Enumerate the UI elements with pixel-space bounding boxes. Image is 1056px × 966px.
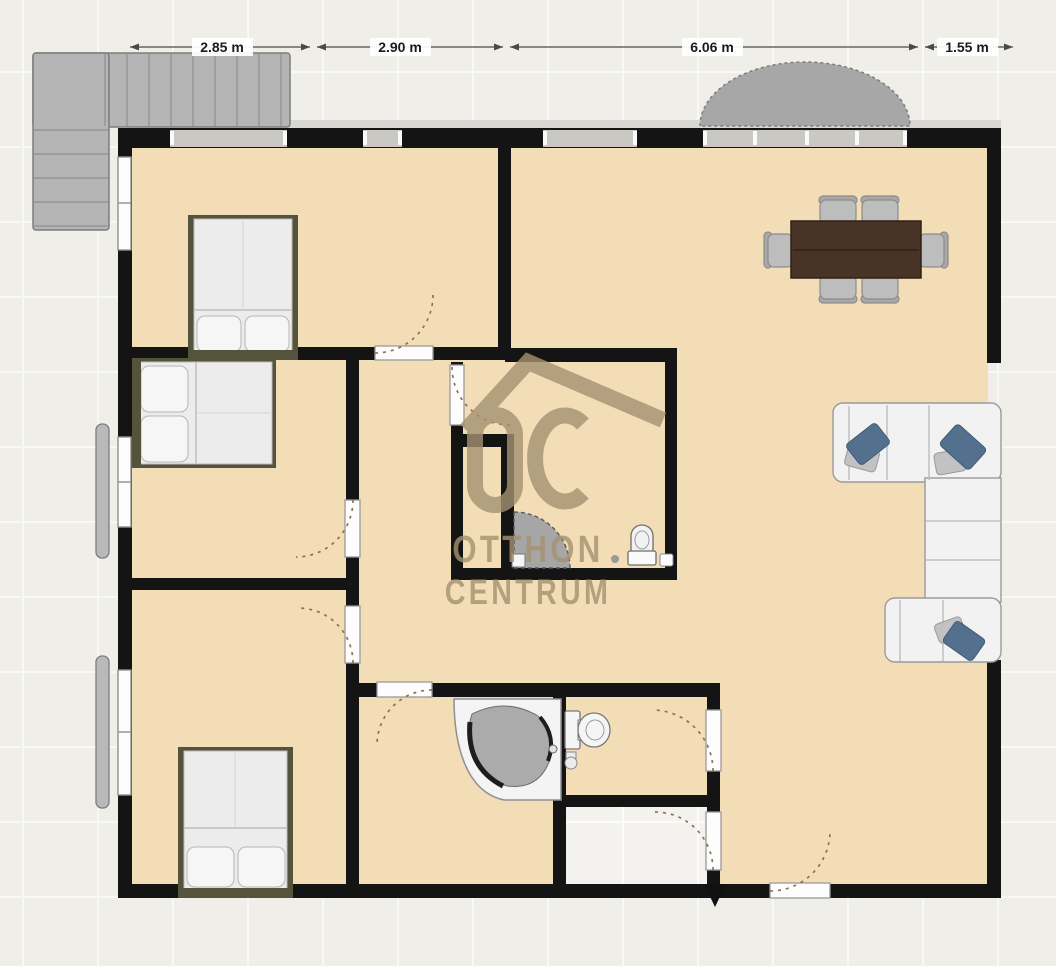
bed-2 <box>132 358 276 468</box>
door-shower-room <box>450 365 464 425</box>
wall-right-lower <box>987 660 1001 898</box>
shutter-bar-upper <box>96 424 109 558</box>
wall-shower-room-right <box>665 350 677 580</box>
toilet-brush <box>565 752 577 769</box>
wall-hung-basin <box>660 554 673 566</box>
window-living-top-small <box>543 130 637 147</box>
wall-living-divider <box>498 148 511 350</box>
door-closet <box>706 812 721 870</box>
watermark-line2: CENTRUM <box>445 572 611 611</box>
window-bedroom2-left <box>118 437 131 527</box>
wall-wc-closet-divider <box>553 795 720 807</box>
window-bedroom1-top <box>170 130 287 147</box>
closet-floor <box>566 807 707 884</box>
wall-bed2-bed3 <box>132 578 346 590</box>
dining-chair <box>919 232 948 268</box>
dining-chair <box>819 196 857 224</box>
dining-chair <box>861 196 899 224</box>
bed-3 <box>178 747 293 898</box>
bed-1 <box>188 215 298 360</box>
floor-plan-page: OTTHON CENTRUM 2.85 m 2.90 m 6.06 m 1.55… <box>0 0 1056 966</box>
window-bedroom3-left <box>118 670 131 795</box>
dimension-label-3: 6.06 m <box>690 39 734 55</box>
dining-chair <box>764 232 793 268</box>
door-bathroom <box>377 682 432 697</box>
window-bedroom1-left <box>118 157 131 250</box>
shutter-bar-lower <box>96 656 109 808</box>
dimension-label-4: 1.55 m <box>945 39 989 55</box>
floor-plan-canvas: OTTHON CENTRUM 2.85 m 2.90 m 6.06 m 1.55… <box>0 0 1056 966</box>
watermark-line1: OTTHON <box>452 529 603 571</box>
dimension-label-2: 2.90 m <box>378 39 422 55</box>
dining-chair <box>861 275 899 303</box>
window-living-top-large <box>703 130 907 147</box>
dining-chair <box>819 275 857 303</box>
tub-faucet <box>549 745 557 753</box>
wall-right-upper <box>987 128 1001 363</box>
floor-drain <box>611 555 619 563</box>
dimension-label-1: 2.85 m <box>200 39 244 55</box>
window-hall-top <box>363 130 402 147</box>
door-wc <box>706 710 721 771</box>
